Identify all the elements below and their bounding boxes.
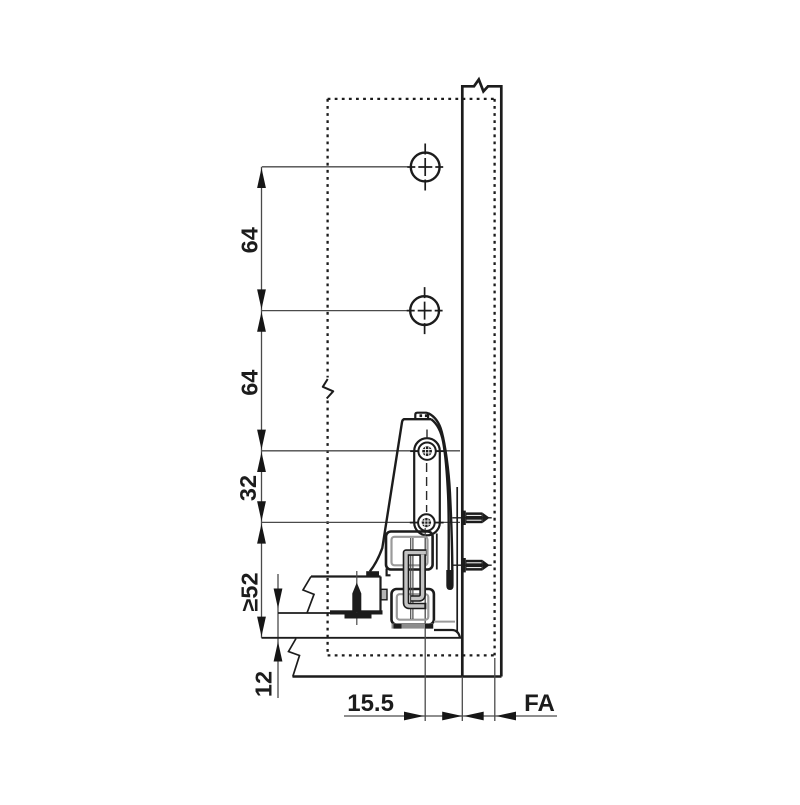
svg-text:15.5: 15.5	[347, 690, 394, 717]
svg-text:32: 32	[235, 475, 261, 501]
svg-text:FA: FA	[524, 690, 555, 717]
svg-text:≥52: ≥52	[237, 572, 263, 611]
svg-text:12: 12	[251, 671, 277, 697]
svg-text:64: 64	[237, 227, 263, 253]
svg-text:64: 64	[237, 370, 263, 396]
